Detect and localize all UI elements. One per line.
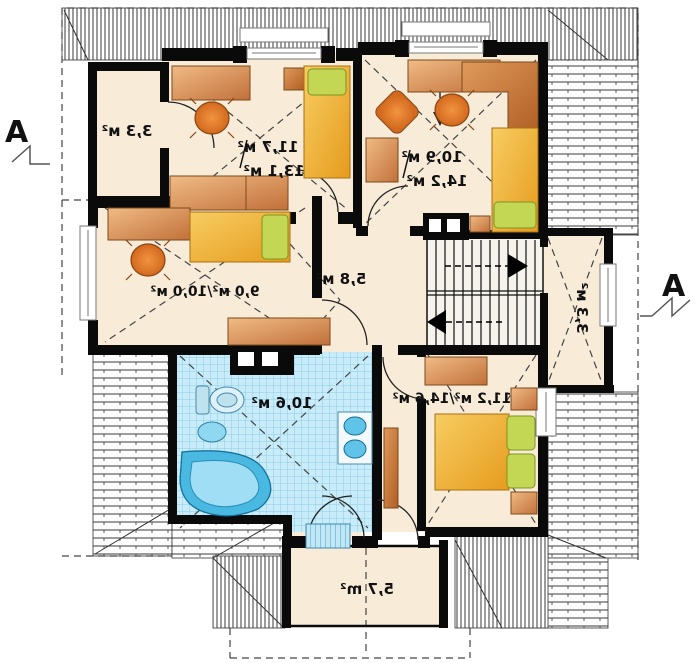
desk	[108, 208, 190, 240]
desk	[172, 66, 250, 100]
section-marker-left: A	[5, 115, 29, 150]
label-bedroom-top-right-2: 14,2 м²	[406, 172, 467, 190]
roof-right-upper	[545, 60, 638, 235]
dormer-window-sill-right	[402, 22, 490, 36]
section-marker-right: A	[662, 269, 686, 304]
balcony-glazed-door	[306, 524, 350, 548]
roof-right-lower	[548, 392, 638, 558]
shelf	[284, 68, 304, 90]
pillow	[262, 215, 288, 259]
label-hall: 5,8 м²	[316, 270, 367, 288]
shelf	[470, 216, 490, 232]
label-bedroom-mid-left: 9,0 м²/10,0 м²	[150, 284, 259, 300]
pillow	[507, 416, 535, 450]
floor-plan: 3,3 м² 11,7 м² 13,1 м² 10,9 м² 14,2 м² 9…	[0, 0, 700, 665]
dresser	[425, 357, 487, 385]
pillow	[494, 202, 536, 228]
roof-balcony-left	[213, 556, 285, 628]
bidet	[198, 422, 226, 442]
label-bedroom-top-right-1: 10,9 м²	[401, 148, 462, 166]
hall-cabinet	[384, 428, 398, 508]
label-storage-right: 3,3 м²	[573, 283, 591, 334]
roof-left-lower	[93, 350, 172, 556]
dormer-window-sill-left	[240, 28, 328, 42]
label-bathroom: 10,6 м²	[251, 394, 312, 412]
pillow	[507, 454, 535, 488]
label-balcony: 5,7 m²	[340, 580, 394, 598]
nightstand	[511, 388, 537, 410]
wardrobe	[228, 318, 330, 345]
label-bedroom-top-center-2: 13,1 м²	[243, 162, 304, 180]
roof-balcony-right	[455, 535, 548, 628]
label-closet-top-left: 3,3 м²	[102, 122, 153, 140]
staircase	[427, 238, 543, 348]
bed-double	[435, 414, 509, 490]
sink	[344, 417, 366, 435]
floor-plan-drawing: 3,3 м² 11,7 м² 13,1 м² 10,9 м² 14,2 м² 9…	[0, 0, 700, 665]
pillow	[308, 69, 346, 95]
cabinet	[366, 138, 398, 182]
label-bedroom-bottom-right: 11,2 м²/14,6 м²	[392, 391, 511, 407]
wardrobe	[170, 176, 288, 210]
sink	[344, 440, 366, 458]
nightstand	[511, 492, 537, 514]
toilet-tank	[196, 386, 209, 414]
